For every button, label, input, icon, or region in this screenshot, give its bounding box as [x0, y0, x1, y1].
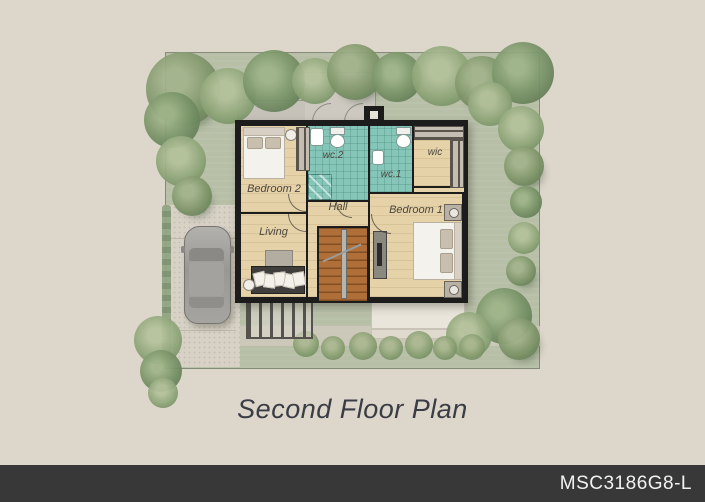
sink	[372, 150, 384, 165]
pillow	[440, 253, 453, 273]
toilet	[396, 134, 411, 148]
pillow	[265, 137, 281, 149]
tree	[498, 106, 544, 152]
tree	[504, 146, 544, 186]
sink	[310, 128, 324, 146]
bed	[413, 222, 462, 280]
car-rear-window	[189, 297, 224, 308]
headboard	[454, 223, 461, 279]
toilet	[330, 134, 345, 148]
nightstand	[444, 204, 462, 221]
car-mirror	[230, 246, 234, 253]
tree	[498, 318, 540, 360]
bed	[243, 127, 285, 179]
page-title: Second Floor Plan	[0, 394, 705, 425]
shrub	[379, 336, 403, 360]
cushion	[292, 271, 306, 287]
pillow	[440, 229, 453, 249]
car-mirror	[181, 246, 185, 253]
shower	[308, 174, 332, 200]
side-table	[243, 279, 255, 291]
shrub	[459, 334, 485, 360]
shrub	[433, 336, 457, 360]
tree	[506, 256, 536, 286]
footer-bar: MSC3186G8-L	[0, 465, 705, 502]
wardrobe	[296, 127, 310, 171]
stair-railing	[341, 229, 347, 299]
tv-console	[373, 231, 387, 279]
shrub	[405, 331, 433, 359]
headboard	[244, 128, 284, 136]
pillow	[247, 137, 263, 149]
tree	[172, 176, 212, 216]
car-roof	[189, 262, 224, 296]
car-windshield	[189, 248, 224, 261]
tree	[508, 222, 540, 254]
closet-rack	[414, 126, 464, 140]
plan-code: MSC3186G8-L	[560, 465, 692, 502]
sofa	[251, 266, 305, 294]
tree	[510, 186, 542, 218]
nightstand	[444, 281, 462, 298]
closet-rack	[450, 140, 464, 188]
car	[184, 226, 231, 324]
shrub	[349, 332, 377, 360]
shrub	[321, 336, 345, 360]
floor-plan-image: Bedroom 2 wc.2 wc.1 wic Bedroom 1 Hall L…	[0, 0, 705, 502]
